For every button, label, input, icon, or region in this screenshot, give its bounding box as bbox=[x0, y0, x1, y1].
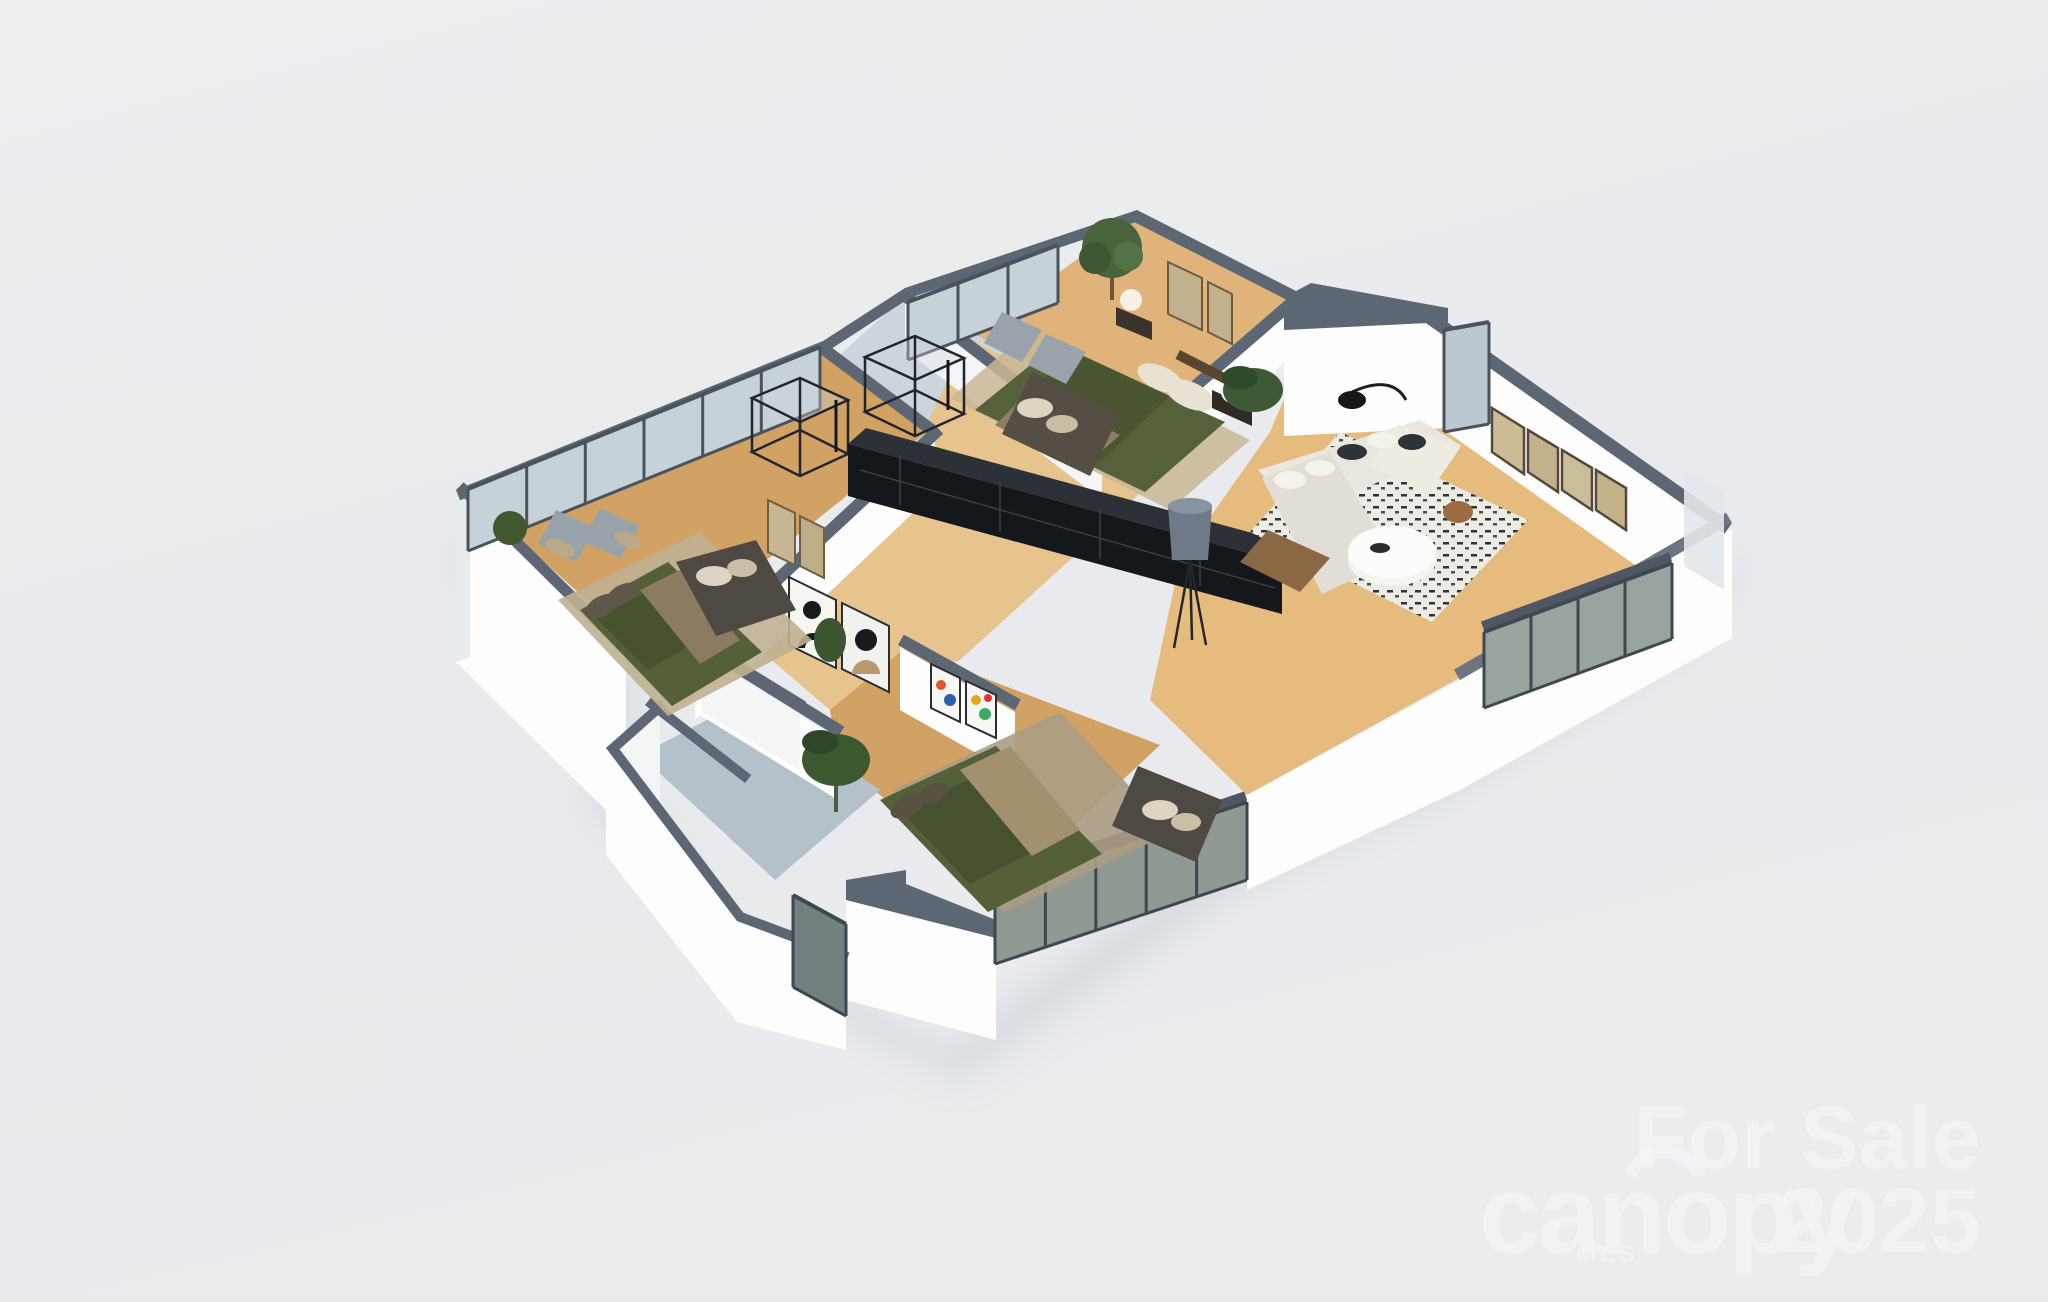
svg-text:2025: 2025 bbox=[1776, 1170, 1981, 1272]
svg-text:MLS: MLS bbox=[1576, 1241, 1639, 1268]
